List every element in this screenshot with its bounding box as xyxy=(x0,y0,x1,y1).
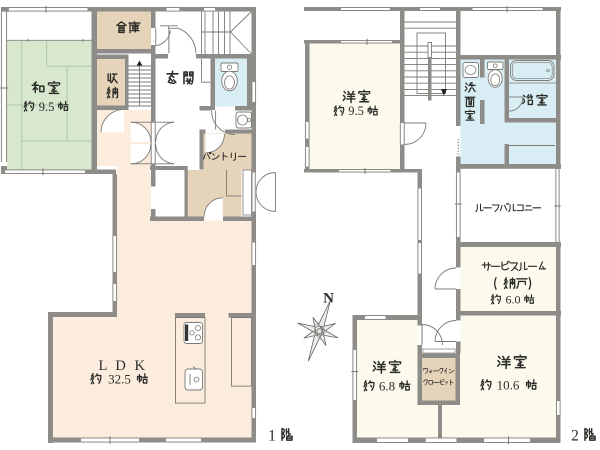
svg-text:9.5: 9.5 xyxy=(39,100,55,114)
svg-text:6.0: 6.0 xyxy=(506,293,521,307)
svg-text:6.8: 6.8 xyxy=(379,378,395,393)
svg-text:N: N xyxy=(323,291,334,307)
svg-text:10.6: 10.6 xyxy=(497,377,520,392)
svg-text:32.5: 32.5 xyxy=(108,371,131,386)
svg-text:9.5: 9.5 xyxy=(348,104,364,118)
svg-text:2: 2 xyxy=(571,428,579,445)
svg-text:1: 1 xyxy=(268,428,276,445)
